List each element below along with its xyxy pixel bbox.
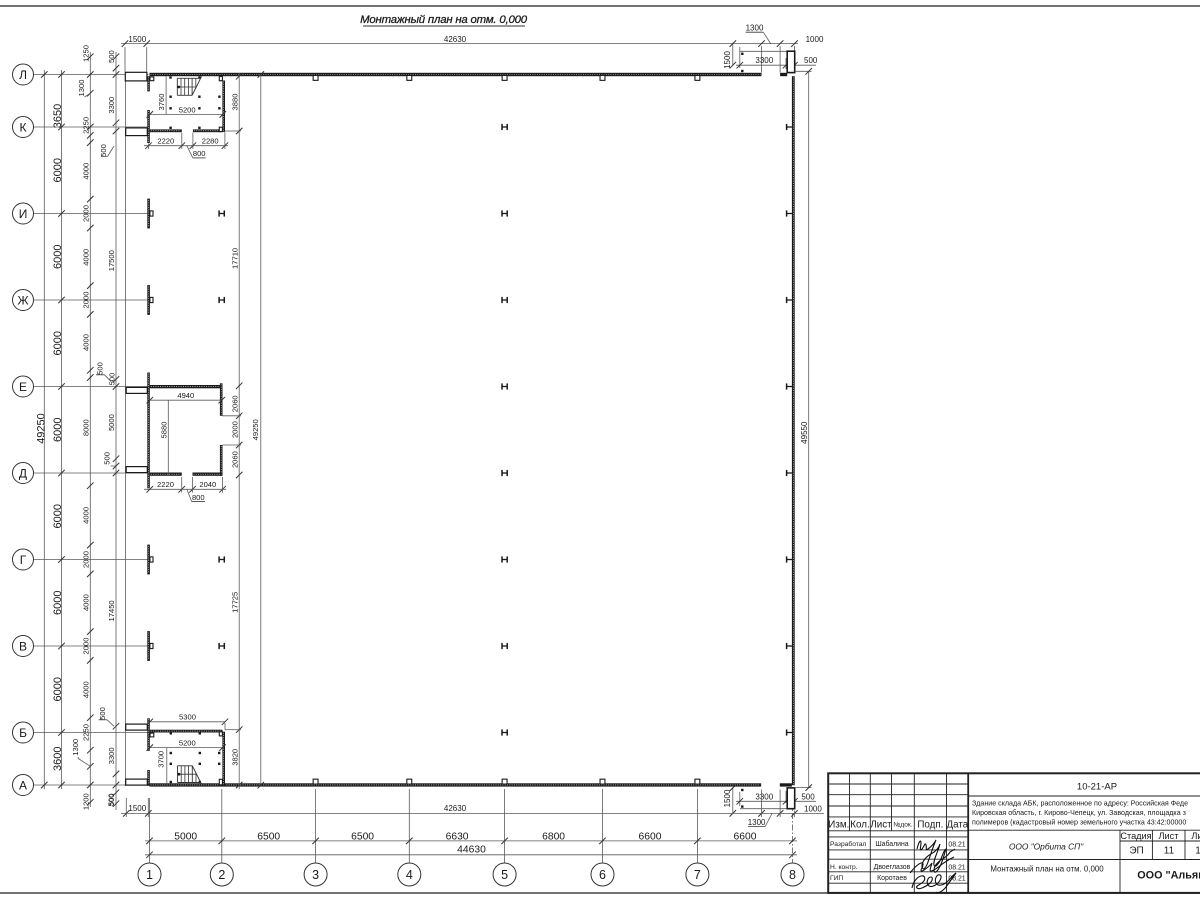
svg-text:42630: 42630 — [444, 35, 467, 44]
svg-text:Г: Г — [20, 553, 27, 567]
svg-text:08.21: 08.21 — [948, 842, 965, 849]
svg-text:Коротаев: Коротаев — [877, 875, 907, 882]
svg-text:500: 500 — [96, 362, 105, 375]
svg-text:3650: 3650 — [52, 104, 64, 128]
svg-text:5200: 5200 — [179, 738, 196, 747]
svg-text:4000: 4000 — [82, 249, 91, 266]
svg-text:Лист: Лист — [1159, 831, 1180, 841]
svg-text:А: А — [19, 778, 27, 792]
svg-text:1: 1 — [1195, 846, 1200, 857]
svg-text:49250: 49250 — [35, 413, 47, 444]
svg-text:8: 8 — [789, 868, 796, 882]
svg-text:6600: 6600 — [639, 831, 662, 842]
svg-text:Дата: Дата — [947, 819, 969, 830]
svg-text:2: 2 — [218, 868, 225, 882]
svg-text:2060: 2060 — [230, 395, 239, 412]
svg-text:ГИП: ГИП — [830, 875, 843, 882]
svg-text:Кировская область, г. Кирово-Ч: Кировская область, г. Кирово-Чепецк, ул.… — [972, 809, 1186, 817]
svg-text:Л: Л — [19, 68, 27, 82]
svg-text:2000: 2000 — [82, 205, 91, 222]
svg-text:Д: Д — [19, 466, 27, 480]
svg-text:1200: 1200 — [82, 793, 91, 810]
svg-text:3880: 3880 — [230, 94, 239, 111]
svg-text:10-21-АР: 10-21-АР — [1077, 782, 1117, 793]
svg-text:2000: 2000 — [230, 421, 239, 438]
svg-text:6000: 6000 — [52, 504, 64, 528]
svg-text:1500: 1500 — [723, 51, 732, 69]
svg-text:2040: 2040 — [199, 480, 216, 489]
svg-text:6000: 6000 — [52, 331, 64, 355]
svg-text:17500: 17500 — [107, 250, 116, 271]
svg-text:Подп.: Подп. — [917, 819, 943, 830]
svg-text:3600: 3600 — [52, 746, 64, 770]
svg-text:500: 500 — [106, 794, 115, 807]
svg-text:500: 500 — [102, 452, 111, 465]
svg-text:1: 1 — [146, 868, 153, 882]
svg-text:800: 800 — [193, 149, 206, 158]
svg-text:1300: 1300 — [71, 739, 80, 756]
svg-text:6500: 6500 — [351, 831, 374, 842]
svg-text:Н. контр.: Н. контр. — [830, 864, 858, 871]
svg-text:2250: 2250 — [82, 117, 91, 134]
svg-text:Монтажный план на отм. 0,000: Монтажный план на отм. 0,000 — [990, 865, 1104, 874]
svg-text:4000: 4000 — [82, 681, 91, 698]
svg-text:4000: 4000 — [82, 163, 91, 180]
svg-text:ЭП: ЭП — [1129, 846, 1143, 857]
svg-text:08.21: 08.21 — [948, 864, 965, 871]
svg-text:Б: Б — [19, 726, 27, 740]
svg-text:И: И — [19, 207, 28, 221]
svg-text:4000: 4000 — [82, 507, 91, 524]
svg-text:17710: 17710 — [230, 248, 239, 269]
svg-text:4940: 4940 — [177, 391, 194, 400]
svg-text:Стадия: Стадия — [1120, 831, 1151, 841]
svg-text:3300: 3300 — [107, 97, 116, 114]
svg-text:500: 500 — [98, 707, 107, 720]
svg-text:полимеров (кадастровый номер з: полимеров (кадастровый номер земельного … — [972, 818, 1186, 826]
svg-text:1500: 1500 — [128, 804, 146, 813]
svg-text:500: 500 — [107, 50, 116, 63]
svg-text:4: 4 — [406, 868, 413, 882]
svg-text:6000: 6000 — [52, 677, 64, 701]
svg-text:4000: 4000 — [82, 334, 91, 351]
svg-text:5: 5 — [501, 868, 508, 882]
svg-text:500: 500 — [804, 56, 818, 65]
svg-text:5000: 5000 — [174, 831, 197, 842]
svg-text:Здание склада АБК, расположенн: Здание склада АБК, расположенное по адре… — [972, 800, 1188, 808]
svg-text:6630: 6630 — [446, 831, 469, 842]
svg-text:2250: 2250 — [82, 724, 91, 741]
svg-text:3820: 3820 — [230, 749, 239, 766]
svg-text:17725: 17725 — [230, 592, 239, 613]
svg-text:8000: 8000 — [82, 419, 91, 436]
svg-text:Ж: Ж — [17, 293, 28, 307]
svg-text:44630: 44630 — [457, 845, 486, 856]
svg-text:2060: 2060 — [230, 451, 239, 468]
svg-text:6000: 6000 — [52, 158, 64, 182]
svg-text:6000: 6000 — [52, 244, 64, 268]
svg-text:Кол.: Кол. — [850, 819, 869, 830]
svg-text:1500: 1500 — [723, 789, 732, 807]
svg-text:500: 500 — [801, 792, 815, 801]
svg-text:3300: 3300 — [755, 56, 773, 65]
svg-text:Шабалина: Шабалина — [875, 840, 908, 848]
svg-text:11: 11 — [1164, 846, 1175, 857]
svg-text:5300: 5300 — [179, 713, 196, 722]
svg-text:Лист: Лист — [870, 819, 892, 830]
svg-text:3300: 3300 — [755, 792, 773, 801]
svg-text:Монтажный план на отм. 0,000: Монтажный план на отм. 0,000 — [360, 14, 528, 26]
svg-text:6600: 6600 — [734, 831, 757, 842]
svg-text:В: В — [19, 639, 27, 653]
svg-text:1500: 1500 — [128, 35, 146, 44]
svg-text:6500: 6500 — [257, 831, 280, 842]
svg-text:1250: 1250 — [82, 45, 91, 62]
svg-text:1000: 1000 — [804, 805, 822, 814]
svg-text:2220: 2220 — [157, 480, 174, 489]
svg-text:4000: 4000 — [82, 594, 91, 611]
svg-text:3300: 3300 — [107, 747, 116, 764]
svg-text:Разработал: Разработал — [830, 840, 866, 848]
svg-text:3700: 3700 — [157, 751, 166, 768]
svg-text:№док.: №док. — [893, 822, 912, 829]
svg-text:2000: 2000 — [82, 638, 91, 655]
svg-text:3760: 3760 — [157, 94, 166, 111]
svg-text:7: 7 — [694, 868, 701, 882]
svg-text:3: 3 — [312, 868, 319, 882]
svg-text:5000: 5000 — [107, 414, 116, 431]
svg-text:1300: 1300 — [748, 818, 766, 827]
svg-text:2280: 2280 — [202, 136, 219, 145]
svg-text:К: К — [20, 120, 27, 134]
svg-text:1300: 1300 — [77, 80, 86, 97]
svg-text:49550: 49550 — [800, 421, 809, 444]
svg-text:42630: 42630 — [444, 804, 467, 813]
svg-text:17450: 17450 — [107, 600, 116, 621]
svg-text:1000: 1000 — [806, 35, 824, 44]
svg-text:6: 6 — [599, 868, 606, 882]
svg-text:Изм.: Изм. — [828, 819, 849, 830]
svg-text:800: 800 — [192, 493, 205, 502]
svg-text:2000: 2000 — [82, 551, 91, 568]
svg-text:6800: 6800 — [542, 831, 565, 842]
svg-text:500: 500 — [99, 144, 108, 157]
svg-text:Ли: Ли — [1191, 831, 1200, 841]
svg-text:ООО "Альянс: ООО "Альянс — [1137, 870, 1200, 882]
svg-text:5880: 5880 — [159, 422, 168, 439]
svg-text:ООО "Орбита СП": ООО "Орбита СП" — [1009, 842, 1084, 852]
svg-text:1300: 1300 — [746, 24, 764, 33]
svg-text:2220: 2220 — [157, 136, 174, 145]
svg-text:49250: 49250 — [251, 419, 260, 440]
svg-text:Двоеглазов: Двоеглазов — [874, 864, 911, 871]
svg-text:Е: Е — [19, 380, 27, 394]
svg-text:2000: 2000 — [82, 292, 91, 309]
svg-text:6000: 6000 — [52, 417, 64, 441]
svg-text:6000: 6000 — [52, 590, 64, 614]
svg-text:5200: 5200 — [179, 105, 196, 114]
